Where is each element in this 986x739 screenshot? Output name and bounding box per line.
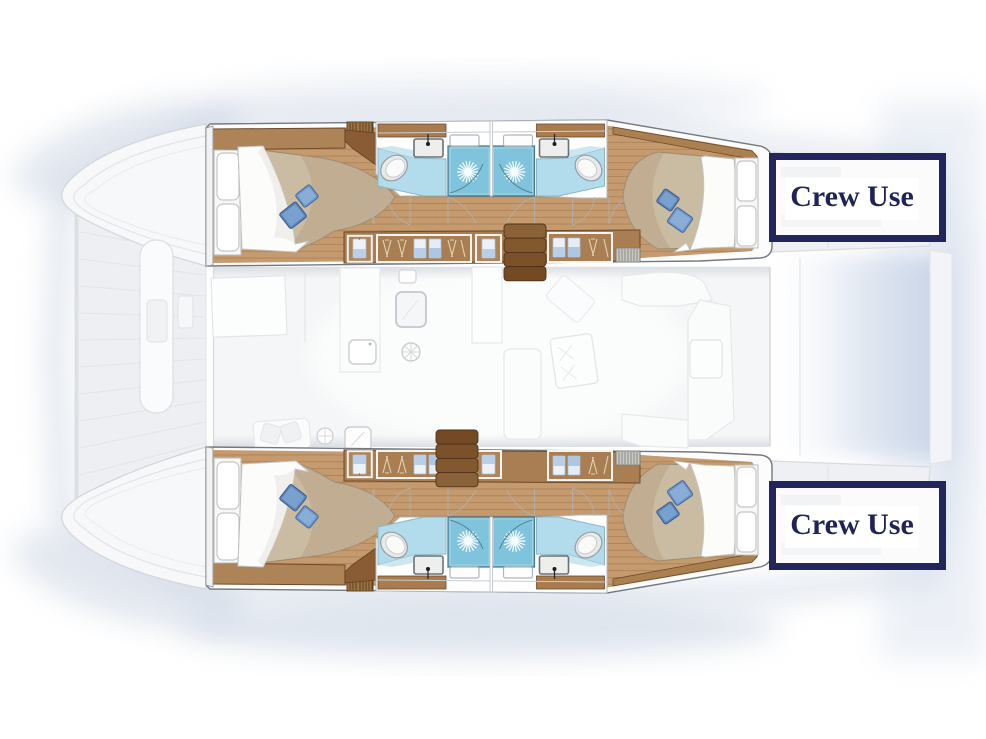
svg-text:Crew Use: Crew Use: [790, 508, 914, 541]
svg-text:Crew Use: Crew Use: [790, 180, 914, 213]
